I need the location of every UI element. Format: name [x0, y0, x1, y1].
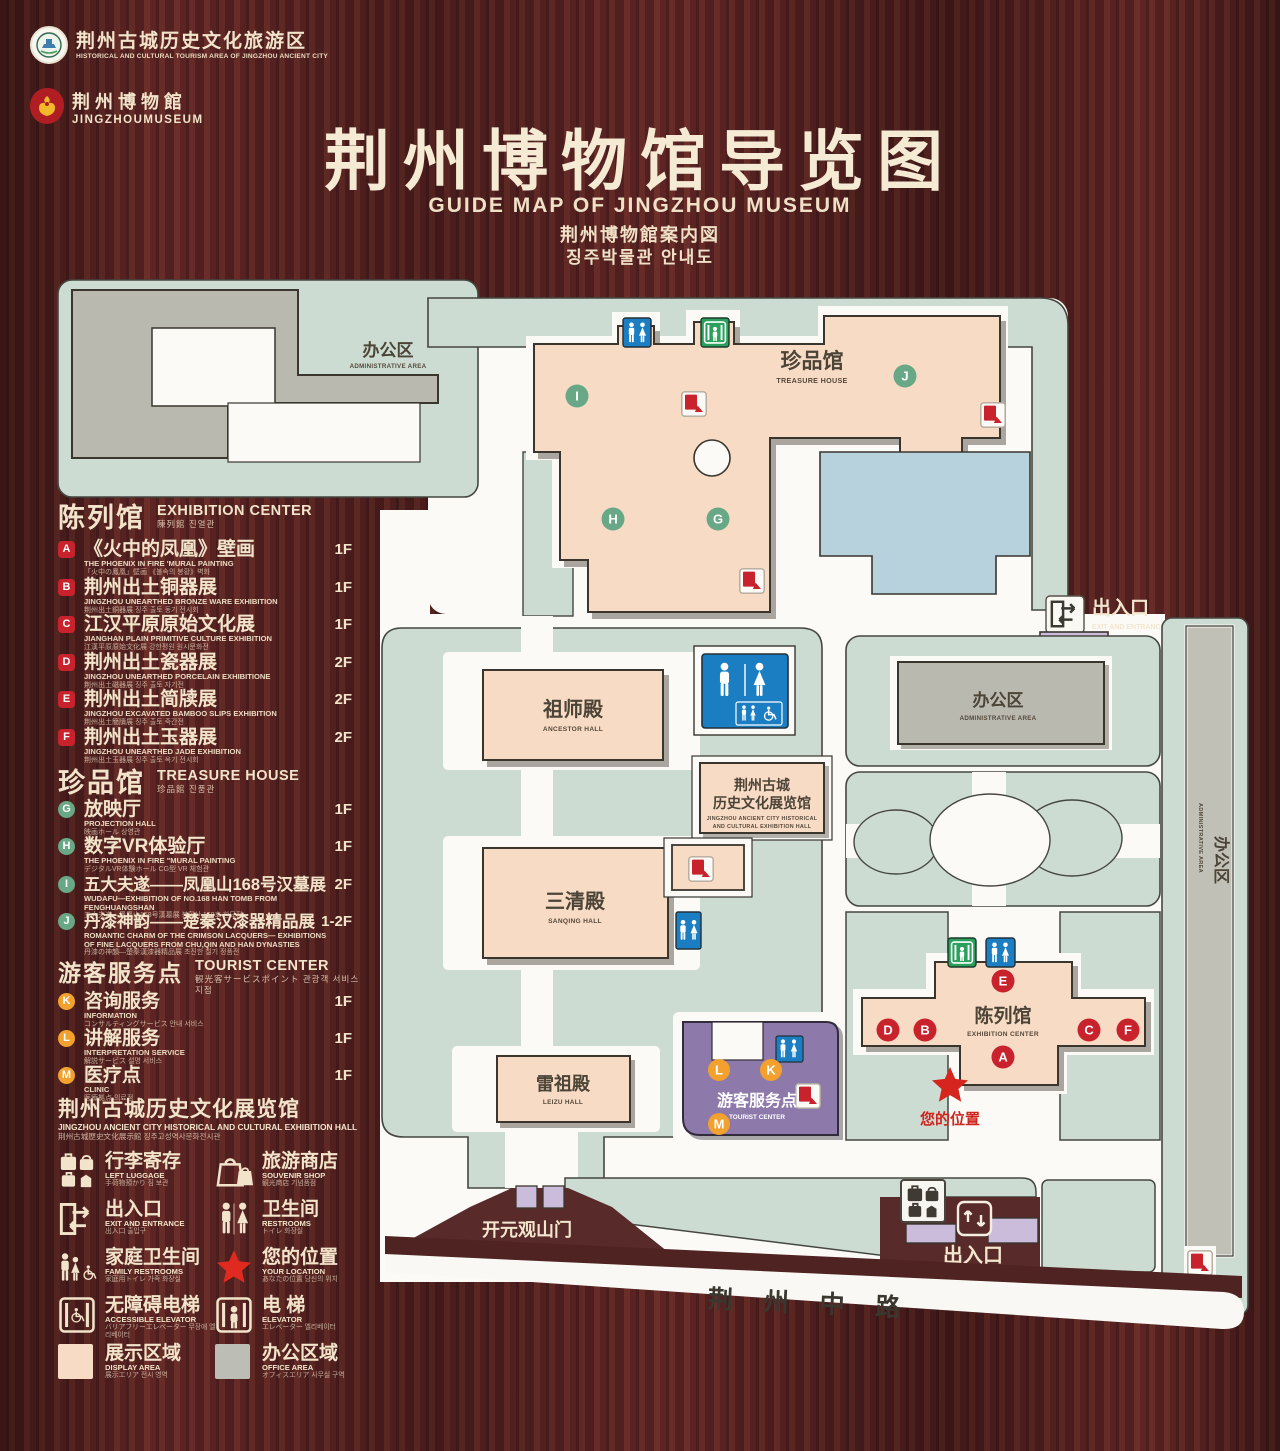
legend-office-area: 办公区域 OFFICE AREA オフィスエリア 사무실 구역 [215, 1344, 375, 1390]
sanqing-hall-label-en: SANQING HALL [548, 918, 602, 925]
facility-en: EXIT AND ENTRANCE [105, 1219, 218, 1228]
floor-label: 1F [334, 801, 352, 818]
facility-en: ACCESSIBLE ELEVATOR [105, 1315, 218, 1324]
service-kiosk-building [664, 838, 752, 897]
jz-hall-title: 荆州古城历史文化展览馆 [58, 1098, 368, 1122]
marker-D: D [877, 1019, 900, 1042]
item-en: JIANGHAN PLAIN PRIMITIVE CULTURE EXHIBIT… [84, 635, 336, 644]
facility-title: 办公区域 [262, 1344, 375, 1363]
floor-label: 2F [334, 691, 352, 708]
legend-item-j: J 丹漆神韵——楚秦汉漆器精品展 ROMANTIC CHARM OF THE C… [58, 912, 356, 957]
section-title: 陈列馆 [58, 503, 145, 533]
facility-exit-entrance: 出入口 EXIT AND ENTRANCE 出入口 출입구 [58, 1200, 218, 1246]
item-title: 荆州出土铜器展 [84, 578, 336, 598]
courtyard-notch [694, 440, 730, 476]
north-exit-label-en: EXIT AND ENTRANCE [1092, 624, 1166, 631]
exhibition-center-label: 陈列馆 [974, 1004, 1031, 1027]
office-strip-east: ADMINISTRATIVE AREA 办公区 [1162, 618, 1248, 1315]
exit-icon [58, 1200, 96, 1238]
facility-title: 行李寄存 [105, 1152, 218, 1171]
family-restroom-icon [58, 1248, 96, 1286]
section-title-en: TOURIST CENTER [195, 958, 368, 974]
jz-exhibition-hall-building: 荆州古城 历史文化展览馆 JINGZHOU ANCIENT CITY HISTO… [692, 756, 832, 840]
leizu-hall-label-en: LEIZU HALL [543, 1099, 583, 1106]
restroom-sign [986, 938, 1015, 967]
entrance-building [988, 1218, 1038, 1243]
section-title-en: TREASURE HOUSE [157, 768, 299, 784]
svg-text:C: C [1084, 1023, 1094, 1038]
svg-text:G: G [713, 512, 723, 527]
floor-label: 1F [334, 838, 352, 855]
floor-label: 1F [334, 616, 352, 633]
facility-en: ELEVATOR [262, 1315, 375, 1324]
marker-E: E [992, 970, 1015, 993]
office-area-swatch [215, 1344, 253, 1382]
legend-item-h: H 数字VR体验厅 THE PHOENIX IN FIRE "MURAL PAI… [58, 837, 356, 874]
left-luggage-sign [901, 1180, 945, 1222]
exhibition-center-label-en: EXHIBITION CENTER [967, 1031, 1039, 1038]
jz-hall-label-2: 历史文化展览馆 [713, 795, 811, 811]
marker-badge-g: G [58, 801, 75, 818]
floor-label: 1F [334, 579, 352, 596]
facility-title: 卫生间 [262, 1200, 375, 1219]
legend-item-f: F 荆州出土玉器展 JINGZHOU UNEARTHED JADE EXHIBI… [58, 728, 356, 765]
luggage-icon [58, 1152, 96, 1190]
item-en: JINGZHOU UNEARTHED PORCELAIN EXHIBITIONE [84, 673, 336, 682]
marker-badge-a: A [58, 541, 75, 558]
item-en: PROJECTION HALL [84, 820, 336, 829]
section-title-en: EXHIBITION CENTER [157, 503, 312, 519]
facility-your-location: 您的位置 YOUR LOCATION あなたの位置 당신의 위치 [215, 1248, 375, 1294]
facility-title: 展示区域 [105, 1344, 218, 1363]
item-sub: デジタルVR体験ホール CG型 VR 체험관 [84, 866, 336, 874]
legend-item-k: K 咨询服务 INFORMATION コンサルティングサービス 안내 서비스 1… [58, 992, 356, 1029]
central-restroom-building [694, 646, 795, 735]
office-block-east: 办公区 ADMINISTRATIVE AREA [846, 636, 1160, 766]
item-en: CLINIC [84, 1086, 336, 1095]
item-en: JINGZHOU EXCAVATED BAMBOO SLIPS EXHIBITI… [84, 710, 336, 719]
legend-item-e: E 荆州出土简牍展 JINGZHOU EXCAVATED BAMBOO SLIP… [58, 690, 356, 727]
admin-strip-label: 办公区 [1212, 836, 1231, 884]
jz-hall-sub: 荆州古城歴史文化展示館 징주고성역사문화전시관 [58, 1132, 368, 1141]
item-title: 江汉平原原始文化展 [84, 615, 336, 635]
legend-item-c: C 江汉平原原始文化展 JIANGHAN PLAIN PRIMITIVE CUL… [58, 615, 356, 652]
floor-label: 2F [334, 876, 352, 893]
jz-hall-en: JINGZHOU ANCIENT CITY HISTORICAL AND CUL… [58, 1122, 368, 1132]
aed-icon [689, 857, 713, 881]
legend-jz-hall: 荆州古城历史文化展览馆 JINGZHOU ANCIENT CITY HISTOR… [58, 1098, 368, 1141]
facility-restrooms: 卫生间 RESTROOMS トイレ 화장실 [215, 1200, 375, 1246]
item-en: JINGZHOU UNEARTHED BRONZE WARE EXHIBITIO… [84, 598, 336, 607]
item-sub: 江漢平原原始文化展 강한평원 원시문화전 [84, 644, 336, 652]
svg-text:F: F [1124, 1023, 1132, 1038]
marker-badge-e: E [58, 691, 75, 708]
guide-map-sign: 荆州古城历史文化旅游区 HISTORICAL AND CULTURAL TOUR… [0, 0, 1280, 1451]
facility-sub: 展示エリア 전시 영역 [105, 1372, 218, 1380]
facility-title: 您的位置 [262, 1248, 375, 1267]
svg-text:B: B [920, 1023, 929, 1038]
floor-label: 1F [334, 541, 352, 558]
elevator-icon [215, 1296, 253, 1334]
garden-plaza [930, 794, 1050, 886]
svg-text:H: H [608, 512, 617, 527]
leizu-hall-label: 雷祖殿 [536, 1073, 591, 1094]
facility-en: SOUVENIR SHOP [262, 1171, 375, 1180]
jz-hall-label-1: 荆州古城 [734, 777, 790, 793]
facility-accessible-elevator: 无障碍电梯 ACCESSIBLE ELEVATOR バリアフリーエレベーター 무… [58, 1296, 218, 1342]
legend-item-a: A 《火中的凤凰》壁画 THE PHOENIX IN FIRE 'MURAL P… [58, 540, 356, 577]
item-title: 医疗点 [84, 1066, 336, 1086]
marker-badge-d: D [58, 654, 75, 671]
item-title: 丹漆神韵——楚秦汉漆器精品展 [84, 912, 336, 932]
section-title-sub: 珍品館 진품관 [157, 784, 299, 795]
admin-nw-label: 办公区 [363, 340, 414, 360]
item-title: 五大夫遂——凤凰山168号汉墓展 [84, 875, 336, 895]
legend-section-treasure: 珍品馆 TREASURE HOUSE 珍品館 진품관 [58, 768, 299, 798]
item-en: WUDAFU—EXHIBITION OF NO.168 HAN TOMB FRO… [84, 895, 336, 912]
facility-title: 出入口 [105, 1200, 218, 1219]
marker-B: B [914, 1019, 937, 1042]
aed-icon [981, 403, 1005, 427]
item-en: JINGZHOU UNEARTHED JADE EXHIBITION [84, 748, 336, 757]
admin-east-label: 办公区 [973, 690, 1024, 710]
marker-G: G [707, 508, 730, 531]
marker-M: M [708, 1113, 730, 1135]
south-lawn-east [1042, 1180, 1155, 1272]
marker-badge-m: M [58, 1067, 75, 1084]
marker-badge-i: I [58, 876, 75, 893]
location-star-icon [215, 1248, 253, 1286]
item-sub: 丹漆の神韻—楚秦漢漆器精品展 초진한 칠기 정품전 [84, 949, 336, 957]
marker-badge-k: K [58, 993, 75, 1010]
facility-title: 电 梯 [262, 1296, 375, 1315]
facility-sub: トイレ 화장실 [262, 1228, 375, 1236]
facility-souvenir-shop: 旅游商店 SOUVENIR SHOP 観光商店 기념품점 [215, 1152, 375, 1198]
marker-L: L [708, 1059, 730, 1081]
elevator-sign [948, 938, 976, 967]
legend-section-exhibition: 陈列馆 EXHIBITION CENTER 陳列館 진열관 [58, 503, 312, 533]
facility-family-restrooms: 家庭卫生间 FAMILY RESTROOMS 家庭用トイレ 가족 화장실 [58, 1248, 218, 1294]
facility-sub: バリアフリーエレベーター 무장애 엘리베이터 [105, 1324, 218, 1340]
section-title: 游客服务点 [58, 958, 183, 988]
facility-sub: 出入口 출입구 [105, 1228, 218, 1236]
facility-en: DISPLAY AREA [105, 1363, 218, 1372]
legend-item-d: D 荆州出土瓷器展 JINGZHOU UNEARTHED PORCELAIN E… [58, 653, 356, 690]
marker-badge-c: C [58, 616, 75, 633]
item-title: 荆州出土玉器展 [84, 728, 336, 748]
facility-sub: エレベーター 엘리베이터 [262, 1324, 375, 1332]
entrance-building [906, 1224, 956, 1243]
facility-sub: あなたの位置 당신의 위치 [262, 1276, 375, 1284]
marker-badge-l: L [58, 1030, 75, 1047]
admin-strip-building [1186, 626, 1233, 1256]
facility-sub: 手荷物預かり 짐 보관 [105, 1180, 218, 1188]
item-sub: 荆州出土簡牘展 징주 출토 죽간전 [84, 719, 336, 727]
shopping-bag-icon [215, 1152, 253, 1190]
facility-sub: 観光商店 기념품점 [262, 1180, 375, 1188]
svg-text:A: A [998, 1050, 1008, 1065]
restroom-sign [776, 1036, 803, 1062]
marker-K: K [760, 1059, 782, 1081]
svg-text:I: I [575, 389, 579, 404]
marker-I: I [566, 385, 589, 408]
kaiyuan-gate-label: 开元观山门 [482, 1219, 572, 1240]
svg-text:K: K [766, 1063, 776, 1078]
restroom-sign-north [623, 318, 651, 347]
facility-en: LEFT LUGGAGE [105, 1171, 218, 1180]
item-sub: 荆州出土玉器展 징주 출토 옥기 전시회 [84, 757, 336, 765]
gate-door [543, 1186, 564, 1208]
ancestor-hall-label-en: ANCESTOR HALL [543, 726, 603, 733]
marker-badge-h: H [58, 838, 75, 855]
floor-label: 2F [334, 654, 352, 671]
jz-hall-label-en2: AND CULTURAL EXHIBITION HALL [713, 824, 812, 830]
item-title: 咨询服务 [84, 992, 336, 1012]
aed-icon [796, 1084, 820, 1108]
garden-island [854, 810, 938, 874]
floor-label: 1F [334, 993, 352, 1010]
svg-text:M: M [714, 1117, 725, 1132]
facility-sub: オフィスエリア 사무실 구역 [262, 1372, 375, 1380]
legend-item-g: G 放映厅 PROJECTION HALL 映画ホール 상영관 1F [58, 800, 356, 837]
floor-label: 2F [334, 729, 352, 746]
aed-icon [1188, 1251, 1212, 1275]
sanqing-hall-label: 三清殿 [545, 889, 606, 913]
facility-elevator: 电 梯 ELEVATOR エレベーター 엘리베이터 [215, 1296, 375, 1342]
facility-en: FAMILY RESTROOMS [105, 1267, 218, 1276]
marker-J: J [894, 365, 917, 388]
restroom-icon [215, 1200, 253, 1238]
item-title: 《火中的凤凰》壁画 [84, 540, 336, 560]
section-title: 珍品馆 [58, 768, 145, 798]
facility-title: 无障碍电梯 [105, 1296, 218, 1315]
svg-text:J: J [901, 369, 908, 384]
item-title: 数字VR体验厅 [84, 837, 336, 857]
svg-text:D: D [883, 1023, 892, 1038]
admin-strip-label-en: ADMINISTRATIVE AREA [1197, 803, 1203, 873]
facility-sub: 家庭用トイレ 가족 화장실 [105, 1276, 218, 1284]
elevator-sign-entrance [958, 1202, 991, 1235]
aed-icon [740, 569, 764, 593]
ancestor-hall-label: 祖师殿 [542, 697, 604, 721]
elevator-sign-north [701, 318, 729, 347]
display-area-swatch [58, 1344, 96, 1382]
item-title: 放映厅 [84, 800, 336, 820]
svg-text:E: E [999, 974, 1008, 989]
treasure-house-label: 珍品馆 [781, 349, 844, 373]
item-en: THE PHOENIX IN FIRE "MURAL PAINTING [84, 857, 336, 866]
admin-east-label-en: ADMINISTRATIVE AREA [960, 715, 1037, 722]
accessible-elevator-icon [58, 1296, 96, 1334]
tourist-center-label-en: TOURIST CENTER [729, 1114, 785, 1121]
floor-label: 1F [334, 1030, 352, 1047]
tourist-center-building: 游客服务点 TOURIST CENTER [673, 1012, 845, 1142]
garden [846, 772, 1160, 906]
item-en: THE PHOENIX IN FIRE 'MURAL PAINTING [84, 560, 336, 569]
marker-A: A [992, 1046, 1015, 1069]
facility-left-luggage: 行李寄存 LEFT LUGGAGE 手荷物預かり 짐 보관 [58, 1152, 218, 1198]
floor-label: 1-2F [321, 913, 352, 930]
facility-title: 旅游商店 [262, 1152, 375, 1171]
item-en: INTERPRETATION SERVICE [84, 1049, 336, 1058]
marker-badge-f: F [58, 729, 75, 746]
marker-badge-j: J [58, 913, 75, 930]
marker-F: F [1117, 1019, 1140, 1042]
facility-en: OFFICE AREA [262, 1363, 375, 1372]
facility-en: RESTROOMS [262, 1219, 375, 1228]
legend-panel: 陈列馆 EXHIBITION CENTER 陳列館 진열관 A 《火中的凤凰》壁… [58, 0, 368, 1451]
tourist-center-label: 游客服务点 [717, 1091, 797, 1110]
small-restroom-sign [676, 912, 701, 949]
marker-badge-b: B [58, 579, 75, 596]
north-exit-label: 出入口 [1092, 596, 1149, 619]
aed-icon [682, 392, 706, 416]
item-title: 荆州出土简牍展 [84, 690, 336, 710]
floor-label: 1F [334, 1067, 352, 1084]
legend-display-area: 展示区域 DISPLAY AREA 展示エリア 전시 영역 [58, 1344, 218, 1390]
item-en: INFORMATION [84, 1012, 336, 1021]
item-sub: 「火中の鳳凰」壁画 《불속의 봉황》벽화 [84, 569, 336, 577]
svg-text:L: L [715, 1063, 723, 1078]
gate-door [516, 1186, 537, 1208]
treasure-house-label-en: TREASURE HOUSE [776, 376, 847, 385]
facility-title: 家庭卫生间 [105, 1248, 218, 1267]
item-en: ROMANTIC CHARM OF THE CRIMSON LACQUERS— … [84, 932, 336, 949]
marker-H: H [602, 508, 625, 531]
legend-item-l: L 讲解服务 INTERPRETATION SERVICE 解説サービス 설명 … [58, 1029, 356, 1066]
facility-en: YOUR LOCATION [262, 1267, 375, 1276]
legend-item-b: B 荆州出土铜器展 JINGZHOU UNEARTHED BRONZE WARE… [58, 578, 356, 615]
item-title: 荆州出土瓷器展 [84, 653, 336, 673]
jz-hall-label-en1: JINGZHOU ANCIENT CITY HISTORICAL [707, 816, 818, 822]
item-title: 讲解服务 [84, 1029, 336, 1049]
section-title-sub: 陳列館 진열관 [157, 519, 312, 530]
marker-C: C [1078, 1019, 1101, 1042]
your-location-label: 您的位置 [919, 1110, 980, 1128]
